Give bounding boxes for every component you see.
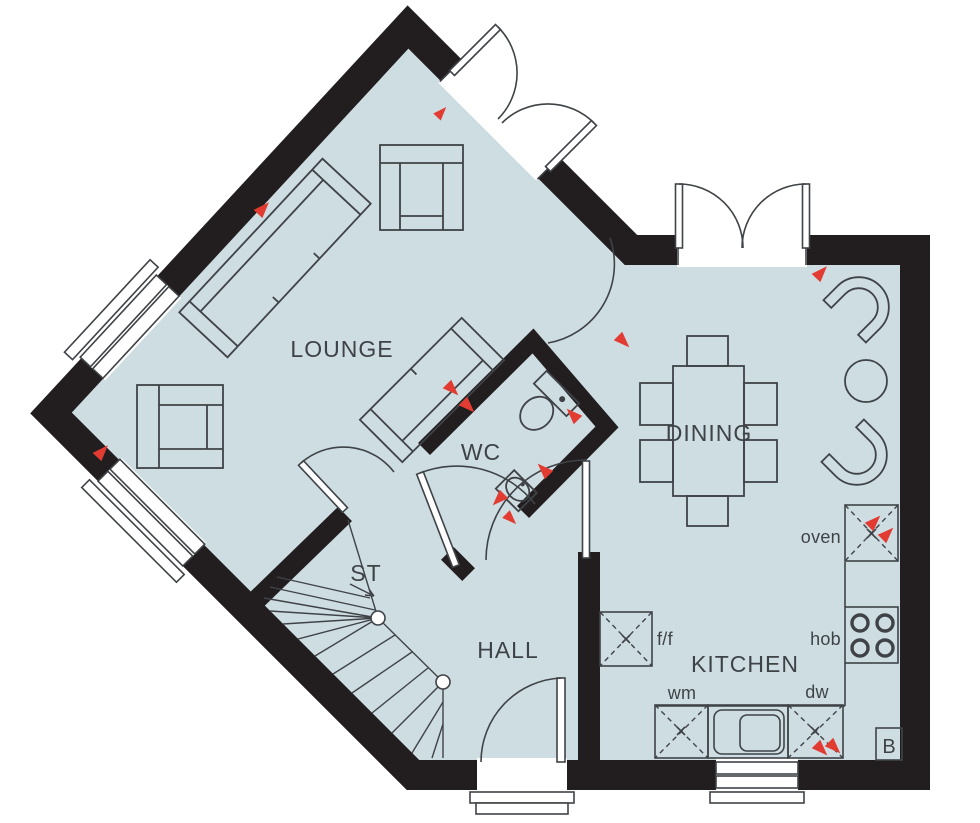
dishwasher-label: dw — [805, 682, 829, 702]
door-sill — [476, 803, 568, 814]
hall-label: HALL — [477, 637, 539, 663]
boiler-label: B — [882, 736, 895, 758]
lounge-label: LOUNGE — [290, 336, 393, 362]
door-sill — [470, 792, 574, 803]
washing-machine-label: wm — [667, 683, 697, 703]
door-leaf — [450, 25, 501, 76]
dining-french-doors — [676, 184, 810, 267]
kitchen-window — [710, 758, 804, 803]
wc-label: WC — [461, 439, 501, 465]
store-label: ST — [350, 560, 381, 586]
oven-label: oven — [801, 527, 841, 547]
kitchen-label: KITCHEN — [691, 651, 799, 677]
hob-label: hob — [810, 629, 841, 649]
dining-label: DINING — [666, 420, 753, 446]
door-leaf — [676, 184, 683, 248]
floor-plan-page: B — [0, 0, 980, 823]
fridge-freezer-label: f/f — [657, 629, 674, 649]
newel-post — [436, 675, 450, 689]
window-sill — [710, 792, 804, 803]
newel-post — [371, 611, 385, 625]
door-leaf — [803, 184, 810, 248]
floor-plan: B — [0, 0, 980, 823]
door-leaf — [546, 121, 597, 172]
door-leaf — [583, 461, 590, 558]
door-leaf — [557, 678, 565, 762]
